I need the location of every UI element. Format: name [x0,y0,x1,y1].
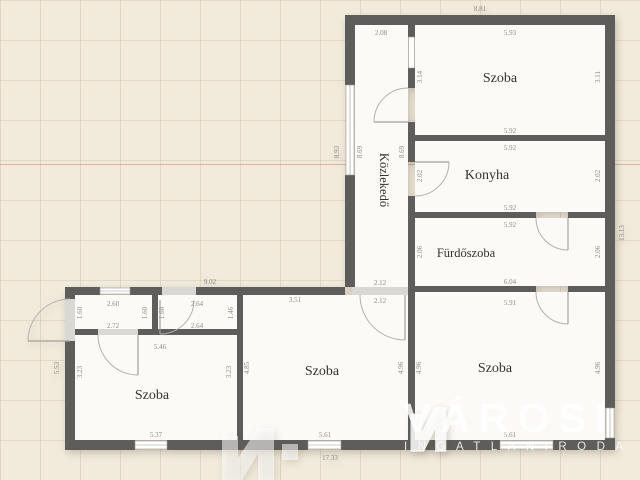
dim-szoba-ne-right: 3.11 [594,71,602,83]
label-szoba-sw: Szoba [135,388,170,403]
watermark-subtitle: INGATLANIRODA [404,441,640,453]
opening-korridor-szoba-mid [352,287,408,295]
dim-szoba-se-right: 4.96 [594,361,602,374]
dim-kamra-left-top: 2.60 [107,300,120,308]
label-szoba-mid: Szoba [305,364,340,379]
room-floors [75,25,605,440]
dim-szoba-sw-top: 5.46 [154,343,167,351]
window-kamra-left-top [100,288,130,294]
door-entrance [28,299,70,341]
dim-szoba-sw-left: 3.23 [76,365,84,378]
dim-konyha-left: 2.02 [416,169,424,182]
dim-korridor-top: 2.08 [375,29,388,37]
dim-konyha-bottom: 5.92 [504,204,517,212]
window-szoba-sw-bottom [135,441,167,449]
watermark-brand: VÁROSI [404,396,640,440]
dim-szoba-se-left: 4.96 [415,361,423,374]
dim-szoba-mid-right: 4.96 [397,361,405,374]
label-korridor: Közlekedő [377,153,391,207]
dim-szoba-sw-bottom: 5.37 [150,431,163,439]
dim-overall-right: 13.13 [618,225,626,241]
dim-left-wing-top: 9.02 [204,278,217,286]
opening-entrance [65,299,75,341]
dim-kamra-right-right: 1.46 [227,306,235,319]
dim-szoba-ne-top: 5.93 [504,29,517,37]
label-furdoszoba: Fürdőszoba [437,246,496,260]
dim-kamra-left-bottom: 2.72 [107,322,120,330]
dim-szoba-mid-top: 3.51 [289,296,302,304]
dim-szoba-sw-right: 3.23 [225,365,233,378]
dim-korridor-inner-left: 8.69 [356,145,364,158]
watermark: VÁROSI INGATLANIRODA [404,396,640,453]
label-szoba-se: Szoba [478,361,513,376]
dim-szoba-ne-left: 3.14 [416,70,424,83]
dim-furdoszoba-right: 2.06 [594,245,602,258]
dim-furdoszoba-top: 5.92 [504,221,517,229]
floor-plan-canvas: 8.81 2.08 5.93 5.92 5.92 5.92 5.92 6.04 … [0,0,640,480]
dim-kamra-left-right: 1.60 [141,306,149,319]
dim-overall-bottom: 17.33 [322,454,338,462]
dim-szoba-mid-bottom: 5.61 [319,431,332,439]
dim-kamra-right-bottom: 2.64 [191,322,204,330]
dim-korridor-outer-left: 8.93 [333,145,341,158]
dim-overall-top: 8.81 [474,5,487,13]
dim-kamra-right-left: 1.60 [158,306,166,319]
dim-konyha-right: 2.02 [594,169,602,182]
label-konyha: Konyha [465,168,510,183]
dim-konyha-top: 5.92 [504,144,517,152]
dim-szoba-se-top: 5.91 [504,299,517,307]
dim-korridor-bottom-outer: 2.12 [374,297,387,305]
dim-kamra-left-left: 1.60 [76,306,84,319]
label-szoba-ne: Szoba [483,71,518,86]
dim-szoba-ne-bottom: 5.92 [504,127,517,135]
dim-furdoszoba-bottom: 6.04 [504,278,517,286]
opening-kamra-right [162,287,196,295]
opening-korridor-wall [409,37,415,68]
dim-left-wing-left: 5.53 [53,361,61,374]
dim-furdoszoba-left: 2.06 [416,245,424,258]
brand-logo-icon [218,420,318,480]
dim-korridor-inner-right: 8.69 [398,145,406,158]
dim-szoba-mid-left: 4.85 [243,361,251,374]
dim-korridor-bottom-inner: 2.12 [374,279,387,287]
window-korridor-left [346,85,354,175]
dim-kamra-right-top: 2.64 [191,300,204,308]
